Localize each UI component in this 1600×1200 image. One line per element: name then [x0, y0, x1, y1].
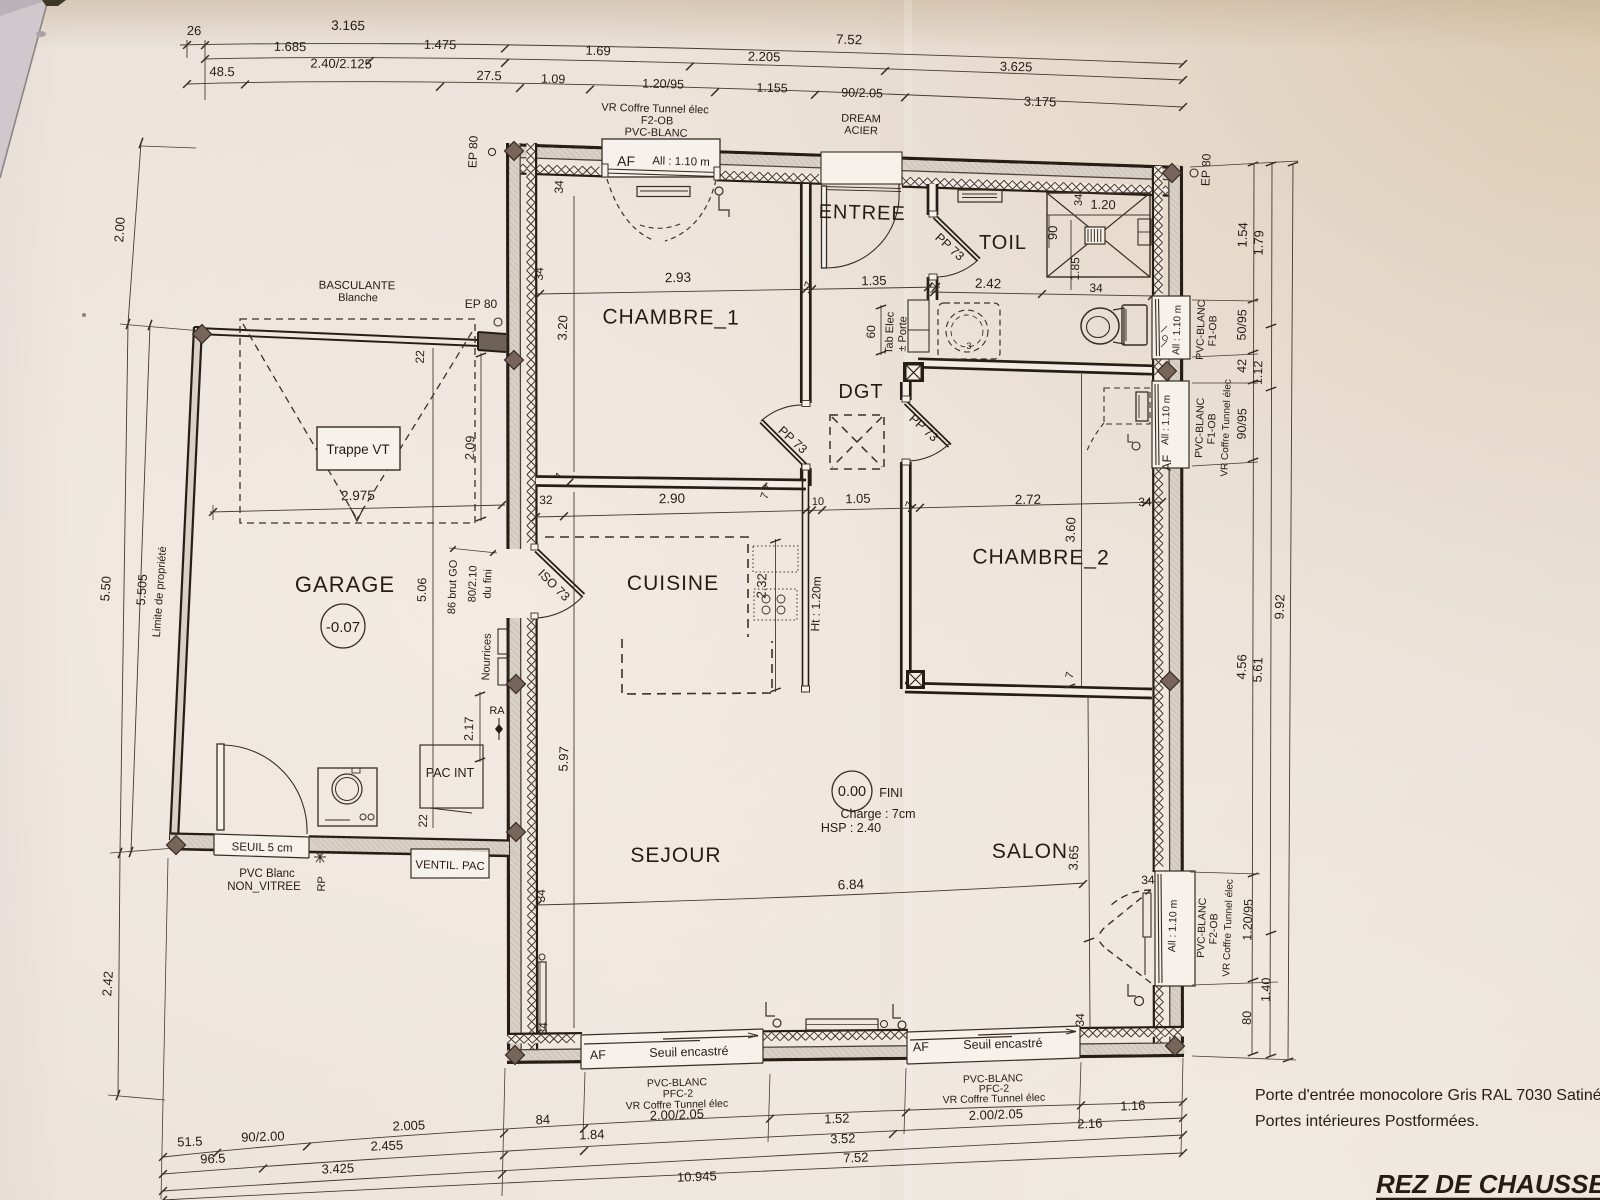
- svg-text:3.60: 3.60: [1063, 517, 1079, 543]
- svg-text:ENTREE: ENTREE: [818, 201, 906, 225]
- svg-text:BASCULANTE: BASCULANTE: [319, 280, 396, 293]
- svg-text:7.52: 7.52: [843, 1150, 869, 1166]
- svg-text:2.42: 2.42: [99, 971, 116, 997]
- svg-text:1.40: 1.40: [1259, 977, 1274, 1002]
- svg-text:2.00/2.05: 2.00/2.05: [968, 1106, 1023, 1123]
- svg-text:AF: AF: [913, 1040, 930, 1054]
- svg-text:All : 1.10 m: All : 1.10 m: [1166, 899, 1180, 952]
- svg-text:CUISINE: CUISINE: [627, 572, 719, 595]
- svg-text:Ht : 1.20m: Ht : 1.20m: [808, 576, 824, 632]
- svg-text:3.20: 3.20: [555, 315, 571, 341]
- svg-text:2.32: 2.32: [754, 573, 770, 599]
- svg-text:2.975: 2.975: [341, 488, 375, 504]
- svg-text:DGT: DGT: [838, 381, 883, 403]
- svg-text:F1-OB: F1-OB: [1206, 315, 1219, 346]
- svg-text:0.00: 0.00: [838, 784, 866, 800]
- svg-text:1.20/95: 1.20/95: [642, 76, 684, 91]
- svg-text:DREAM: DREAM: [841, 112, 881, 125]
- svg-text:2.455: 2.455: [370, 1137, 403, 1153]
- svg-text:51.5: 51.5: [177, 1134, 203, 1150]
- svg-text:Tab Elec: Tab Elec: [883, 311, 896, 354]
- svg-text:REZ DE CHAUSSEE: REZ DE CHAUSSEE: [1376, 1169, 1600, 1199]
- svg-text:1.12: 1.12: [1251, 360, 1266, 385]
- svg-text:6.84: 6.84: [837, 877, 864, 893]
- svg-text:± Porte: ± Porte: [896, 316, 909, 352]
- svg-text:2.09: 2.09: [463, 435, 478, 460]
- svg-text:1.05: 1.05: [845, 491, 871, 506]
- svg-text:EP 80: EP 80: [1198, 153, 1213, 186]
- svg-text:ACIER: ACIER: [844, 125, 878, 138]
- svg-text:PVC Blanc: PVC Blanc: [239, 868, 295, 880]
- svg-text:RP: RP: [316, 876, 329, 892]
- svg-text:CHAMBRE_2: CHAMBRE_2: [972, 545, 1110, 569]
- svg-text:3.425: 3.425: [321, 1160, 354, 1176]
- svg-text:1.685: 1.685: [274, 39, 307, 55]
- svg-text:-0.07: -0.07: [326, 619, 360, 636]
- svg-text:3: 3: [966, 341, 971, 351]
- svg-text:1.54: 1.54: [1235, 222, 1251, 248]
- svg-text:2.40/2.125: 2.40/2.125: [310, 55, 372, 71]
- svg-text:22: 22: [416, 814, 430, 828]
- svg-text:10: 10: [812, 496, 824, 508]
- svg-text:1.20: 1.20: [1090, 197, 1116, 212]
- svg-text:5.505: 5.505: [134, 574, 150, 606]
- svg-text:SEUIL 5 cm: SEUIL 5 cm: [231, 841, 292, 855]
- svg-text:Seuil encastré: Seuil encastré: [649, 1044, 729, 1060]
- svg-text:Porte d'entrée monocolore Gris: Porte d'entrée monocolore Gris RAL 7030 …: [1255, 1087, 1600, 1104]
- svg-text:1.09: 1.09: [541, 72, 566, 87]
- svg-text:VENTIL. PAC: VENTIL. PAC: [415, 859, 485, 873]
- svg-text:EP 80: EP 80: [465, 135, 480, 168]
- svg-text:5.97: 5.97: [556, 746, 572, 772]
- svg-text:86 brut GO: 86 brut GO: [446, 559, 460, 614]
- svg-text:90/2.00: 90/2.00: [241, 1128, 285, 1145]
- svg-text:26: 26: [187, 23, 202, 38]
- svg-text:27.5: 27.5: [476, 68, 502, 83]
- svg-text:3.65: 3.65: [1066, 845, 1082, 871]
- svg-text:50/95: 50/95: [1234, 309, 1249, 341]
- svg-text:CHAMBRE_1: CHAMBRE_1: [602, 305, 740, 329]
- svg-text:34: 34: [552, 180, 566, 194]
- svg-text:80: 80: [1240, 1011, 1254, 1025]
- svg-text:du fini: du fini: [481, 569, 494, 599]
- svg-text:1.475: 1.475: [424, 37, 457, 53]
- svg-text:SALON: SALON: [992, 840, 1068, 863]
- svg-text:34: 34: [1073, 1013, 1087, 1027]
- svg-text:1.16: 1.16: [1120, 1098, 1146, 1114]
- svg-text:2.72: 2.72: [1015, 492, 1042, 507]
- svg-text:F2-OB: F2-OB: [1207, 913, 1220, 944]
- svg-text:Portes intérieures Postformées: Portes intérieures Postformées.: [1255, 1113, 1479, 1130]
- svg-text:3.165: 3.165: [331, 18, 365, 34]
- svg-text:1.52: 1.52: [824, 1111, 850, 1127]
- svg-text:2.16: 2.16: [1077, 1116, 1103, 1132]
- svg-text:2.205: 2.205: [748, 49, 781, 65]
- svg-text:90/95: 90/95: [1234, 408, 1249, 440]
- svg-text:5.06: 5.06: [415, 577, 430, 602]
- svg-text:2.42: 2.42: [975, 276, 1002, 291]
- svg-text:PVC-BLANC: PVC-BLANC: [1195, 897, 1209, 958]
- svg-text:3.625: 3.625: [1000, 59, 1033, 75]
- svg-text:34: 34: [532, 267, 546, 281]
- svg-text:34: 34: [536, 1022, 550, 1036]
- svg-text:GARAGE: GARAGE: [295, 572, 395, 597]
- svg-text:84: 84: [535, 1112, 550, 1127]
- svg-text:2.17: 2.17: [462, 716, 477, 741]
- svg-text:TOIL: TOIL: [979, 232, 1027, 254]
- svg-text:9.92: 9.92: [1272, 594, 1288, 620]
- svg-text:48.5: 48.5: [209, 64, 235, 79]
- svg-text:90: 90: [1045, 225, 1060, 240]
- svg-text:FINI: FINI: [879, 786, 903, 800]
- svg-text:PVC-BLANC: PVC-BLANC: [1194, 299, 1208, 360]
- svg-text:3.52: 3.52: [830, 1131, 856, 1147]
- svg-text:All : 1.10 m: All : 1.10 m: [1160, 395, 1173, 445]
- svg-text:34: 34: [534, 889, 548, 903]
- svg-text:34: 34: [1138, 495, 1152, 509]
- svg-text:NON_VITREE: NON_VITREE: [227, 881, 301, 893]
- svg-text:F1-OB: F1-OB: [1205, 413, 1218, 444]
- svg-text:4.56: 4.56: [1234, 654, 1250, 680]
- svg-text:2.90: 2.90: [659, 491, 686, 506]
- svg-text:90/2.05: 90/2.05: [841, 85, 883, 100]
- svg-text:Blanche: Blanche: [338, 292, 378, 304]
- svg-text:3.175: 3.175: [1024, 94, 1057, 110]
- svg-text:34: 34: [1073, 194, 1085, 207]
- svg-text:F2-OB: F2-OB: [641, 115, 674, 128]
- svg-text:1.69: 1.69: [585, 43, 611, 59]
- svg-text:All : 1.10 m: All : 1.10 m: [652, 155, 710, 169]
- svg-text:34: 34: [1141, 873, 1155, 887]
- svg-text:Nourrices: Nourrices: [480, 633, 494, 681]
- svg-text:All : 1.10 m: All : 1.10 m: [1171, 305, 1184, 355]
- svg-text:1.20/95: 1.20/95: [1240, 899, 1255, 941]
- svg-text:5.50: 5.50: [97, 576, 114, 602]
- svg-text:1.79: 1.79: [1251, 230, 1267, 256]
- svg-text:RA: RA: [489, 705, 505, 717]
- svg-text:2.00: 2.00: [111, 217, 128, 243]
- svg-text:10.945: 10.945: [677, 1168, 717, 1184]
- svg-text:HSP : 2.40: HSP : 2.40: [821, 821, 881, 835]
- svg-text:2.93: 2.93: [665, 270, 692, 285]
- svg-text:1.85: 1.85: [1068, 257, 1083, 281]
- svg-text:SEJOUR: SEJOUR: [630, 844, 721, 867]
- svg-text:1.35: 1.35: [861, 273, 887, 288]
- svg-text:42: 42: [1235, 359, 1249, 373]
- svg-text:AF: AF: [1160, 454, 1175, 471]
- svg-text:5.61: 5.61: [1250, 657, 1266, 683]
- svg-text:1.155: 1.155: [756, 81, 788, 96]
- svg-text:AF: AF: [617, 153, 635, 169]
- svg-text:Seuil encastré: Seuil encastré: [963, 1036, 1043, 1052]
- svg-text:32: 32: [539, 493, 553, 507]
- svg-text:80/2.10: 80/2.10: [466, 565, 479, 602]
- svg-text:PVC-BLANC: PVC-BLANC: [624, 126, 687, 140]
- svg-text:EP 80: EP 80: [465, 297, 498, 311]
- svg-text:Trappe VT: Trappe VT: [326, 442, 389, 457]
- svg-text:Charge : 7cm: Charge : 7cm: [840, 807, 915, 821]
- svg-text:34: 34: [1089, 281, 1103, 295]
- svg-text:7.52: 7.52: [836, 32, 863, 48]
- svg-text:AF: AF: [590, 1048, 607, 1062]
- svg-text:60: 60: [864, 325, 878, 339]
- svg-text:22: 22: [413, 350, 427, 364]
- svg-text:PVC-BLANC: PVC-BLANC: [1193, 397, 1207, 458]
- svg-text:2.005: 2.005: [392, 1117, 425, 1133]
- svg-text:96.5: 96.5: [200, 1151, 226, 1167]
